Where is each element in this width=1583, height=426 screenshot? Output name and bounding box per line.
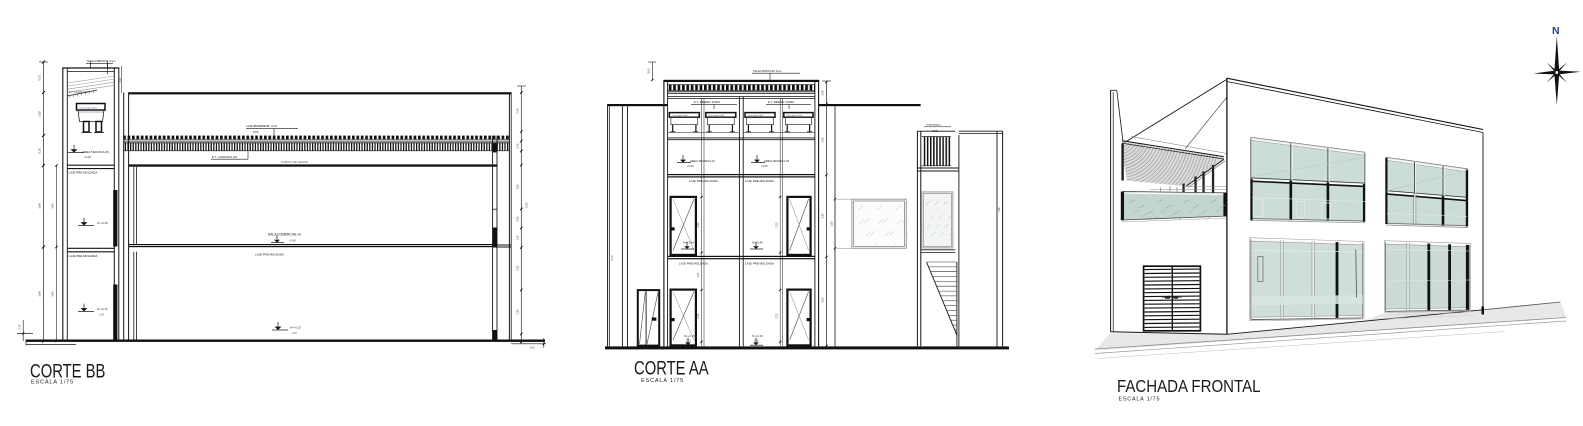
svg-text:7,96: 7,96 <box>998 207 1001 212</box>
svg-text:0,75: 0,75 <box>38 75 42 81</box>
svg-text:0,15: 0,15 <box>530 347 535 350</box>
svg-text:0,08: 0,08 <box>517 143 520 148</box>
svg-text:PCS: PCS <box>253 130 259 134</box>
svg-text:3,70: 3,70 <box>610 255 614 261</box>
svg-text:+6,08: +6,08 <box>84 155 91 159</box>
svg-text:N=+3,48: N=+3,48 <box>683 240 694 244</box>
svg-text:TELHA FIBROCIM. 6mm: TELHA FIBROCIM. 6mm <box>87 59 116 63</box>
svg-text:LAJE PRE-MOLDADA: LAJE PRE-MOLDADA <box>255 252 284 256</box>
svg-text:3,08: 3,08 <box>38 111 42 117</box>
svg-text:ESCALA 1/75: ESCALA 1/75 <box>641 378 684 384</box>
svg-text:2,80: 2,80 <box>51 203 55 209</box>
svg-text:3,96: 3,96 <box>822 90 825 95</box>
svg-text:+3,48: +3,48 <box>289 238 296 242</box>
svg-text:N=+0,15: N=+0,15 <box>290 325 301 329</box>
svg-text:E.T.: RESERV. 2x500L: E.T.: RESERV. 2x500L <box>768 100 795 104</box>
svg-text:N: N <box>1552 25 1560 37</box>
svg-text:AREA TECNICA 03: AREA TECNICA 03 <box>82 150 109 154</box>
svg-text:LAJE PRE-MOLDADA: LAJE PRE-MOLDADA <box>745 179 774 183</box>
svg-text:2,80: 2,80 <box>51 291 55 297</box>
svg-text:FACHADA FRONTAL: FACHADA FRONTAL <box>1117 377 1260 396</box>
svg-text:N=+3,48: N=+3,48 <box>752 240 763 244</box>
svg-text:2,30: 2,30 <box>517 265 520 270</box>
svg-text:ESCALA 1/75: ESCALA 1/75 <box>31 380 74 386</box>
svg-text:CORTE AA: CORTE AA <box>634 358 709 379</box>
svg-text:LAJE PRE-MOLDADA: LAJE PRE-MOLDADA <box>679 262 708 266</box>
svg-text:3,48: 3,48 <box>38 203 42 209</box>
svg-text:E.T.: CANALETA H-8: E.T.: CANALETA H-8 <box>212 155 238 159</box>
svg-text:VENEZIANA 4x: VENEZIANA 4x <box>926 124 942 127</box>
svg-text:3,48: 3,48 <box>38 291 42 297</box>
svg-text:0,00: 0,00 <box>754 340 759 343</box>
svg-text:SALA COMERCIAL 02: SALA COMERCIAL 02 <box>268 233 301 237</box>
svg-text:3,40: 3,40 <box>822 213 825 218</box>
svg-text:PCS: PCS <box>933 130 938 133</box>
svg-text:0,60: 0,60 <box>517 216 520 221</box>
svg-text:+6,08: +6,08 <box>761 164 768 168</box>
svg-text:LAJE IMPERMEAB. i=1%: LAJE IMPERMEAB. i=1% <box>246 124 277 128</box>
svg-text:2,20: 2,20 <box>697 313 700 318</box>
svg-text:0,07: 0,07 <box>119 77 122 82</box>
svg-text:0,00: 0,00 <box>686 340 691 343</box>
svg-text:+6,08: +6,08 <box>687 164 694 168</box>
svg-text:0,00: 0,00 <box>99 314 104 317</box>
svg-text:AREA TECNICA 02: AREA TECNICA 02 <box>764 159 789 163</box>
svg-text:2,30: 2,30 <box>517 309 520 314</box>
svg-text:2,20: 2,20 <box>776 222 779 227</box>
svg-text:LAJE PRE-MOLDADA: LAJE PRE-MOLDADA <box>69 254 98 258</box>
svg-text:2,20: 2,20 <box>776 313 779 318</box>
svg-text:1,60: 1,60 <box>830 221 833 226</box>
svg-text:LAJE PRE-MOLDADA: LAJE PRE-MOLDADA <box>69 171 98 175</box>
svg-text:2,20: 2,20 <box>697 222 700 227</box>
svg-text:0,30: 0,30 <box>38 148 42 154</box>
svg-text:LAJE PRE-MOLDADA: LAJE PRE-MOLDADA <box>745 262 774 266</box>
svg-text:LAJE PRE-MOLDADA: LAJE PRE-MOLDADA <box>689 179 718 183</box>
svg-text:N=+3,48: N=+3,48 <box>97 221 108 225</box>
svg-text:FORRO DE GESSO: FORRO DE GESSO <box>281 160 309 164</box>
svg-text:E.T.: CALHA 10%: E.T.: CALHA 10% <box>69 91 89 94</box>
svg-text:ESCALA 1/75: ESCALA 1/75 <box>1119 397 1161 403</box>
svg-text:0,54: 0,54 <box>517 108 520 113</box>
svg-text:N=+0,15: N=+0,15 <box>752 334 763 338</box>
svg-text:AREA TECNICA 01: AREA TECNICA 01 <box>690 159 715 163</box>
svg-text:N=+0,15: N=+0,15 <box>97 307 108 311</box>
svg-text:1,20: 1,20 <box>697 272 700 277</box>
svg-text:1,60: 1,60 <box>517 184 520 189</box>
svg-text:0,15: 0,15 <box>19 324 22 329</box>
svg-text:8,30: 8,30 <box>526 202 529 207</box>
svg-text:3,55: 3,55 <box>822 297 825 302</box>
svg-text:0,00: 0,00 <box>292 332 297 335</box>
svg-text:Caixa dagua 500 L: Caixa dagua 500 L <box>79 107 98 109</box>
svg-text:2,96: 2,96 <box>822 137 825 142</box>
svg-text:0,60: 0,60 <box>648 68 651 73</box>
svg-text:N=+0,15: N=+0,15 <box>684 334 695 338</box>
svg-text:E.T.: RESERV. 2x500L: E.T.: RESERV. 2x500L <box>694 100 721 104</box>
svg-text:TELHA FIBROCIM. 6mm: TELHA FIBROCIM. 6mm <box>753 69 782 73</box>
svg-text:1,20: 1,20 <box>517 235 520 240</box>
